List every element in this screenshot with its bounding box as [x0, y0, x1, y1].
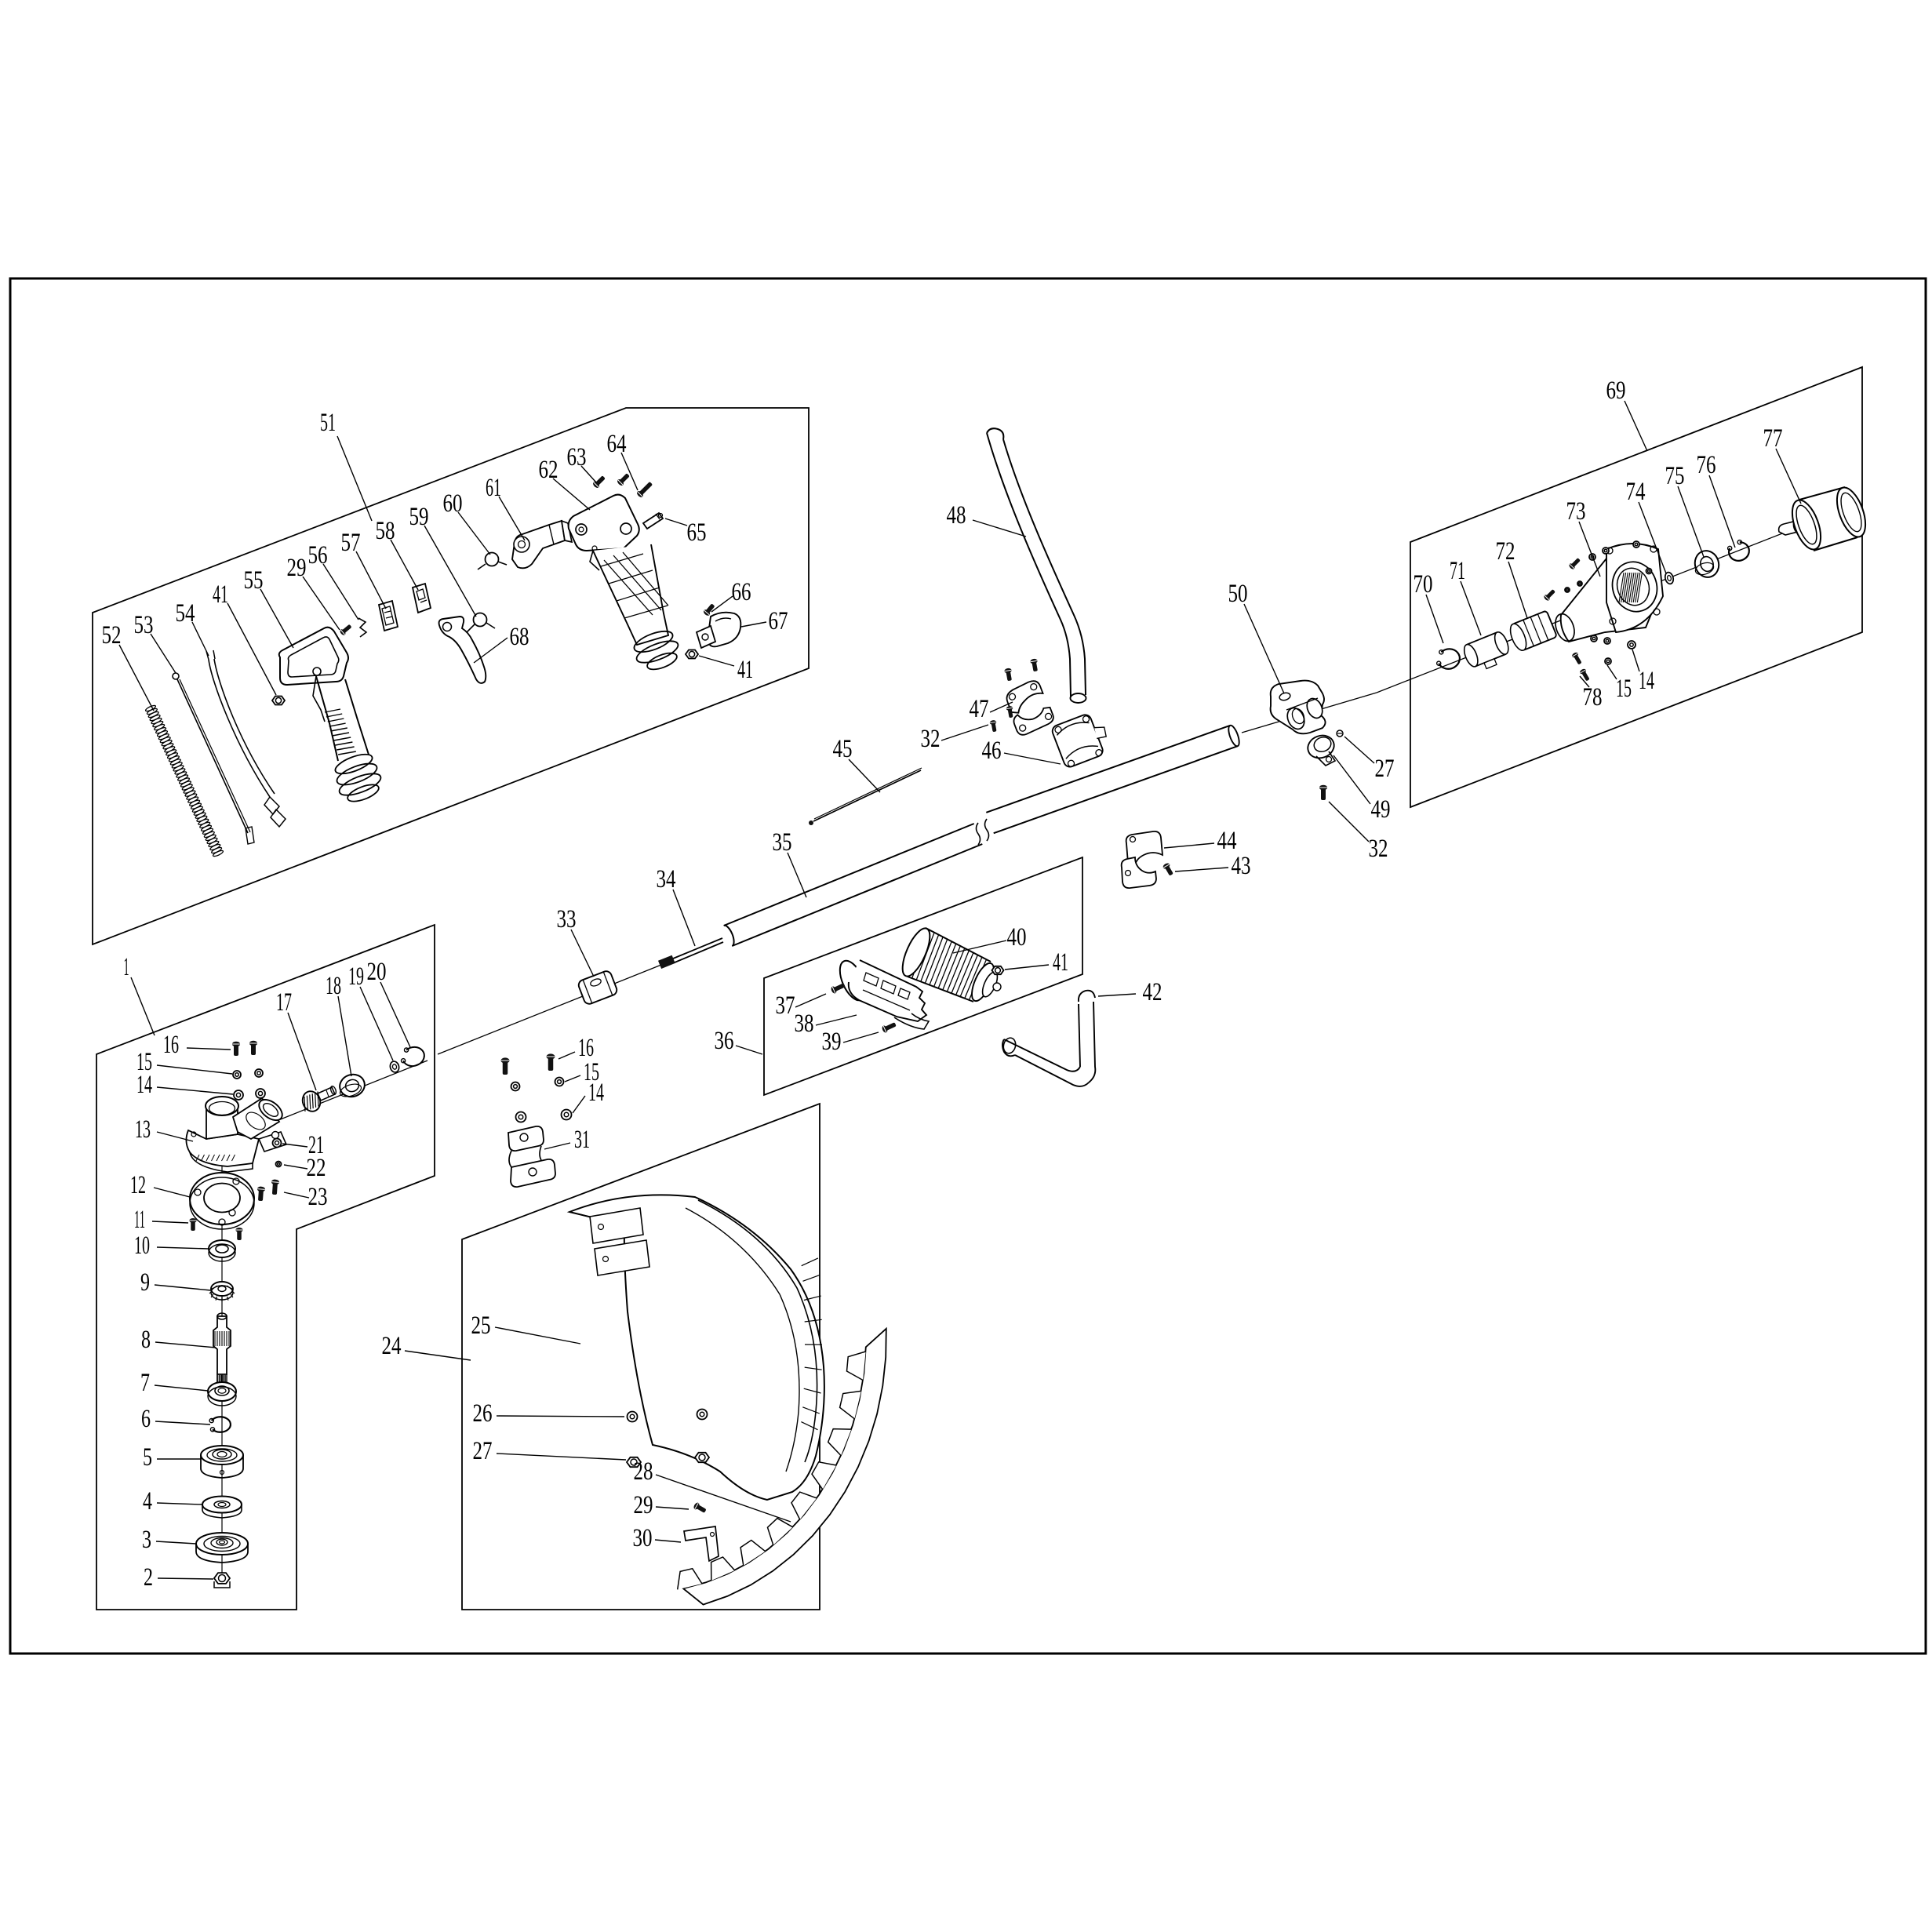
svg-text:6: 6: [141, 1405, 151, 1433]
svg-text:70: 70: [1414, 570, 1433, 599]
svg-text:68: 68: [510, 623, 529, 651]
svg-text:9: 9: [140, 1268, 150, 1297]
svg-text:22: 22: [307, 1154, 326, 1182]
svg-text:63: 63: [567, 443, 587, 471]
svg-text:27: 27: [1375, 755, 1395, 783]
svg-text:17: 17: [276, 988, 292, 1017]
svg-text:33: 33: [557, 905, 577, 933]
svg-text:41: 41: [1053, 948, 1068, 977]
svg-text:52: 52: [102, 621, 122, 649]
svg-text:48: 48: [947, 501, 966, 529]
svg-text:25: 25: [471, 1312, 491, 1340]
svg-text:11: 11: [134, 1206, 145, 1234]
svg-text:54: 54: [176, 599, 195, 628]
svg-text:66: 66: [732, 578, 751, 606]
svg-text:12: 12: [130, 1171, 146, 1199]
svg-text:32: 32: [921, 725, 941, 753]
svg-text:59: 59: [409, 503, 429, 531]
svg-text:18: 18: [326, 972, 341, 1000]
svg-text:5: 5: [143, 1443, 152, 1472]
svg-text:67: 67: [769, 607, 788, 635]
svg-text:31: 31: [574, 1126, 590, 1154]
svg-text:26: 26: [473, 1399, 493, 1428]
svg-text:77: 77: [1763, 424, 1783, 453]
svg-text:3: 3: [142, 1526, 151, 1554]
svg-text:19: 19: [348, 962, 364, 991]
svg-text:13: 13: [135, 1115, 151, 1144]
svg-text:69: 69: [1606, 377, 1626, 405]
svg-text:72: 72: [1496, 537, 1515, 566]
svg-text:45: 45: [833, 735, 853, 763]
svg-text:36: 36: [715, 1027, 734, 1055]
svg-text:75: 75: [1665, 462, 1685, 490]
svg-text:64: 64: [607, 430, 627, 458]
svg-text:34: 34: [657, 865, 676, 893]
svg-text:10: 10: [134, 1232, 150, 1260]
svg-text:49: 49: [1371, 795, 1391, 824]
svg-text:73: 73: [1566, 497, 1586, 526]
svg-text:29: 29: [634, 1491, 653, 1519]
svg-text:43: 43: [1232, 852, 1251, 880]
svg-text:61: 61: [486, 474, 501, 502]
svg-text:20: 20: [367, 958, 387, 986]
svg-text:14: 14: [588, 1079, 604, 1107]
svg-text:35: 35: [773, 828, 792, 857]
svg-text:32: 32: [1369, 835, 1388, 863]
svg-text:44: 44: [1217, 827, 1237, 855]
svg-text:47: 47: [970, 695, 989, 723]
svg-text:1: 1: [124, 953, 129, 981]
svg-text:15: 15: [1616, 675, 1632, 703]
svg-text:14: 14: [136, 1071, 152, 1099]
svg-text:78: 78: [1583, 683, 1603, 711]
svg-text:16: 16: [163, 1031, 179, 1059]
svg-text:42: 42: [1143, 978, 1162, 1006]
svg-text:41: 41: [213, 580, 228, 609]
svg-text:57: 57: [341, 529, 361, 557]
svg-text:50: 50: [1228, 580, 1248, 608]
svg-text:55: 55: [244, 566, 264, 595]
svg-text:46: 46: [982, 737, 1002, 765]
svg-text:28: 28: [634, 1457, 653, 1486]
svg-text:40: 40: [1007, 923, 1027, 951]
svg-text:14: 14: [1639, 667, 1654, 695]
svg-text:76: 76: [1697, 451, 1716, 479]
svg-text:23: 23: [308, 1183, 328, 1211]
svg-text:41: 41: [737, 656, 753, 684]
svg-text:58: 58: [376, 517, 395, 545]
svg-text:24: 24: [382, 1332, 402, 1360]
svg-text:37: 37: [776, 991, 795, 1020]
svg-text:27: 27: [473, 1437, 493, 1465]
svg-text:39: 39: [822, 1028, 842, 1056]
svg-text:7: 7: [140, 1369, 150, 1397]
svg-text:71: 71: [1450, 557, 1465, 585]
svg-text:51: 51: [320, 409, 336, 437]
svg-text:4: 4: [143, 1487, 152, 1515]
svg-text:65: 65: [687, 518, 707, 547]
svg-text:2: 2: [144, 1563, 153, 1592]
svg-text:74: 74: [1626, 478, 1646, 506]
svg-text:30: 30: [633, 1524, 653, 1552]
svg-text:53: 53: [134, 611, 154, 639]
svg-text:38: 38: [795, 1010, 814, 1038]
svg-text:8: 8: [141, 1326, 151, 1354]
